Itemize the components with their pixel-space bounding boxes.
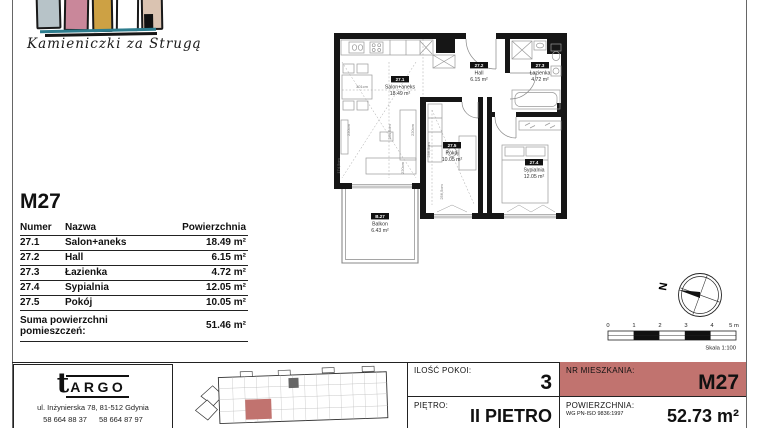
page-border-right xyxy=(746,0,747,428)
floor-cell: PIĘTRO: II PIETRO xyxy=(407,397,560,428)
company-phones: 58 664 88 37 58 664 87 97 xyxy=(14,415,172,424)
dim-label: 236,5cm xyxy=(426,142,431,158)
room-area: 4.72 m² xyxy=(531,77,549,83)
company-box: t ARGO ul. Inżynierska 78, 81-512 Gdynia… xyxy=(13,364,173,428)
sypialnia-door xyxy=(495,117,516,138)
rooms-count-label: ILOŚĆ POKOI: xyxy=(414,366,553,375)
room-labels: 27.1 Salon+aneks 18.49 m² 27.2 Hall 6.15… xyxy=(371,62,550,234)
room-label-balkon: B.27 Balkon 6.43 m² xyxy=(371,213,389,234)
row-name: Hall xyxy=(65,251,83,265)
logo-house-2 xyxy=(64,0,90,31)
highlighted-unit xyxy=(245,399,272,420)
row-area: 12.05 m² xyxy=(206,281,246,295)
row-area: 4.72 m² xyxy=(212,266,246,280)
table-row: 27.1 Salon+aneks 18.49 m² xyxy=(20,236,248,251)
room-area: 6.15 m² xyxy=(470,77,488,83)
room-name: Łazienka xyxy=(530,71,551,77)
row-area: 6.15 m² xyxy=(212,251,246,265)
room-table-block: M27 Numer Nazwa Powierzchnia 27.1 Salon+… xyxy=(20,190,248,342)
room-area: 6.43 m² xyxy=(371,228,389,234)
room-label-sypialnia: 27.4 Sypialnia 12.05 m² xyxy=(523,159,544,180)
logo-house-door xyxy=(144,14,153,28)
company-logo: t ARGO xyxy=(57,373,129,398)
company-phone-2: 58 664 87 97 xyxy=(99,415,143,424)
col-header-name: Nazwa xyxy=(65,221,96,235)
sum-label: Suma powierzchni pomieszczeń: xyxy=(20,315,108,337)
logo-letter-t: t xyxy=(57,373,69,394)
doors xyxy=(462,39,536,138)
room-id: B.27 xyxy=(375,214,385,219)
row-num: 27.2 xyxy=(20,251,39,265)
company-address: ul. Inżynierska 78, 81-512 Gdynia xyxy=(14,403,172,412)
room-id: 27.2 xyxy=(475,63,484,68)
room-id: 27.5 xyxy=(448,143,457,148)
row-num: 27.4 xyxy=(20,281,39,295)
room-name: Pokój xyxy=(446,151,459,157)
floor-value: II PIETRO xyxy=(470,406,552,427)
room-label-pokoj: 27.5 Pokój 10.05 m² xyxy=(442,142,463,163)
room-label-hall: 27.2 Hall 6.15 m² xyxy=(470,62,488,83)
logo-house-5 xyxy=(141,0,164,30)
table-sum-row: Suma powierzchni pomieszczeń: 51.46 m² xyxy=(20,311,248,342)
walls xyxy=(334,33,567,219)
room-name: Salon+aneks xyxy=(385,85,416,91)
pokoj-door xyxy=(462,102,478,118)
table-row: 27.3 Łazienka 4.72 m² xyxy=(20,266,248,281)
row-area: 18.49 m² xyxy=(206,236,246,250)
row-name: Łazienka xyxy=(65,266,107,280)
room-name: Sypialnia xyxy=(523,168,544,174)
area-cell: POWIERZCHNIA: WG PN-ISO 9836:1997 52.73 … xyxy=(560,397,746,428)
col-header-num: Numer xyxy=(20,221,52,235)
unit-code-title: M27 xyxy=(20,190,248,214)
scale-tick: 2 xyxy=(658,323,661,329)
dim-label: 301cm xyxy=(356,84,369,89)
row-name: Pokój xyxy=(65,296,92,310)
room-area: 18.49 m² xyxy=(390,91,411,97)
logo-house-3 xyxy=(92,0,114,32)
scale-tick: 1 xyxy=(632,323,635,329)
unit-number-value: M27 xyxy=(698,371,739,395)
rooms-count-cell: ILOŚĆ POKOI: 3 xyxy=(407,362,560,397)
scale-tick: 4 xyxy=(710,323,714,329)
row-num: 27.1 xyxy=(20,236,39,250)
dim-label: 220cm xyxy=(346,123,351,136)
room-name: Balkon xyxy=(372,222,388,228)
area-value: 52.73 m² xyxy=(667,406,739,427)
sum-label-line2: pomieszczeń: xyxy=(20,326,108,337)
scale-tick: 0 xyxy=(606,323,609,329)
scale-ticks: 0 1 2 3 4 5 m xyxy=(606,323,739,329)
row-name: Salon+aneks xyxy=(65,236,126,250)
row-num: 27.5 xyxy=(20,296,39,310)
company-phone-1: 58 664 88 37 xyxy=(43,415,87,424)
scale-tick: 5 m xyxy=(729,323,739,329)
table-row: 27.4 Sypialnia 12.05 m² xyxy=(20,281,248,296)
room-id: 27.3 xyxy=(536,63,545,68)
row-area: 10.05 m² xyxy=(206,296,246,310)
room-id: 27.4 xyxy=(530,160,539,165)
floor-plan-sheet: Kamieniczki za Strugą M27 Numer Nazwa Po… xyxy=(0,0,760,428)
col-header-area: Powierzchnia xyxy=(182,221,246,235)
room-label-salon: 27.1 Salon+aneks 18.49 m² xyxy=(385,76,416,97)
dim-label: 284,5cm xyxy=(387,124,392,140)
floor-plan-drawing: 301cm 220cm 284,5cm 220cm 174,5cm 220cm … xyxy=(315,20,580,300)
dim-label: 256,5cm xyxy=(439,184,444,200)
room-area: 10.05 m² xyxy=(442,157,463,163)
logo-house-1 xyxy=(36,0,62,29)
scale-bar: 0 1 2 3 4 5 m Skala 1:100 xyxy=(598,318,748,358)
row-name: Sypialnia xyxy=(65,281,109,295)
compass-north-label: N xyxy=(657,282,670,292)
scale-caption: Skala 1:100 xyxy=(705,346,736,352)
table-header: Numer Nazwa Powierzchnia xyxy=(20,221,248,236)
sum-value: 51.46 m² xyxy=(206,320,246,331)
building-overview-map xyxy=(183,365,403,428)
logo-letters-argo: ARGO xyxy=(66,375,129,398)
room-name: Hall xyxy=(475,71,484,77)
unit-details-grid: ILOŚĆ POKOI: 3 NR MIESZKANIA: M27 PIĘTRO… xyxy=(407,362,746,428)
room-area: 12.05 m² xyxy=(524,174,545,180)
room-label-lazienka: 27.3 Łazienka 4.72 m² xyxy=(530,62,551,83)
table-row: 27.5 Pokój 10.05 m² xyxy=(20,296,248,311)
dim-label: 220cm xyxy=(410,123,415,136)
table-row: 27.2 Hall 6.15 m² xyxy=(20,251,248,266)
rooms-count-value: 3 xyxy=(540,371,552,395)
scale-tick: 3 xyxy=(684,323,687,329)
row-num: 27.3 xyxy=(20,266,39,280)
sum-label-line1: Suma powierzchni xyxy=(20,315,108,326)
logo-house-4 xyxy=(116,0,139,31)
room-id: 27.1 xyxy=(396,77,405,82)
brand-name: Kamieniczki za Strugą xyxy=(27,36,202,52)
dim-label: 174,5cm xyxy=(336,158,341,174)
dim-label: 220cm xyxy=(400,161,405,174)
unit-number-cell: NR MIESZKANIA: M27 xyxy=(560,362,746,397)
